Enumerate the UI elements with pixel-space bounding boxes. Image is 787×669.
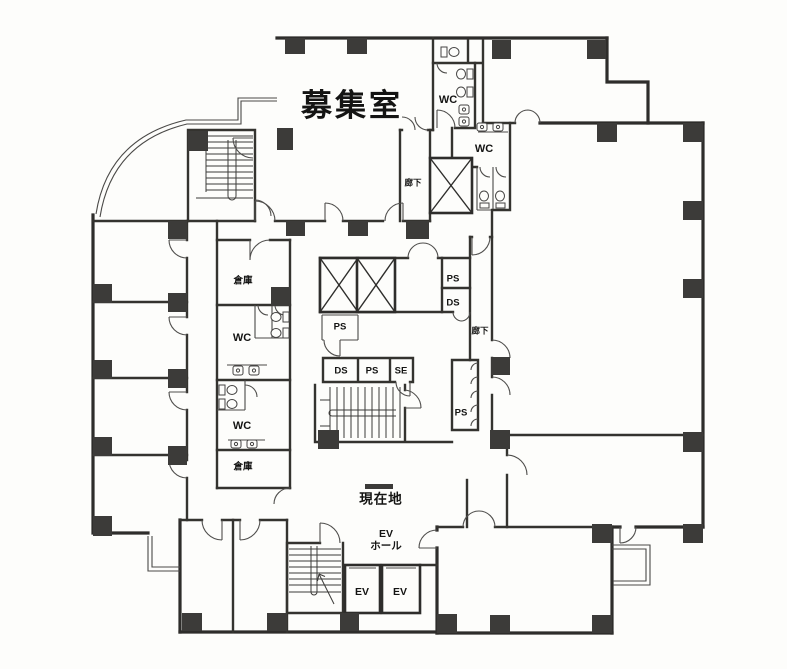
- label-ev-hall-line1: EV: [379, 528, 393, 540]
- label-current-location: 現在地: [359, 491, 403, 507]
- label-ps-row: PS: [366, 366, 379, 377]
- label-ps-tall: PS: [455, 408, 468, 419]
- label-ds-row: DS: [334, 366, 347, 377]
- balcony-edges: [96, 98, 650, 585]
- label-storage-upper: 倉庫: [232, 275, 253, 287]
- label-wc-top: WC: [439, 94, 457, 106]
- sink-icon: [249, 366, 259, 375]
- label-corridor-top: 廊下: [404, 177, 422, 187]
- sink-icon: [493, 123, 503, 131]
- label-ds-shaft: DS: [446, 298, 459, 309]
- label-wc-left-upper: WC: [233, 332, 251, 344]
- label-se-row: SE: [395, 366, 408, 377]
- sink-icon: [233, 366, 243, 375]
- label-ev-car-right: EV: [393, 586, 407, 598]
- label-ps-shaft: PS: [447, 274, 460, 285]
- toilet-icon: [457, 69, 474, 79]
- toilet-icon: [480, 191, 490, 208]
- label-ps-small: PS: [334, 322, 347, 333]
- sink-icon: [459, 105, 469, 114]
- toilet-icon: [271, 328, 289, 338]
- sink-icon: [459, 117, 469, 126]
- label-ev-car-left: EV: [355, 586, 369, 598]
- label-storage-lower: 倉庫: [232, 461, 253, 473]
- floor-plan: 募集室 WC WC 廊下 倉庫 PS DS 廊下 PS WC DS PS SE …: [0, 0, 787, 669]
- sink-icon: [231, 440, 241, 448]
- toilet-icon: [441, 47, 459, 57]
- label-main-room: 募集室: [300, 88, 403, 123]
- label-ev-hall-line2: ホール: [370, 540, 402, 552]
- toilet-icon: [219, 385, 237, 395]
- current-location-marker: [365, 484, 393, 489]
- staircase-bottom: [289, 546, 341, 604]
- toilet-icon: [457, 87, 474, 97]
- toilet-icon: [496, 191, 506, 208]
- label-wc-left-lower: WC: [233, 420, 251, 432]
- toilet-icon: [219, 399, 237, 409]
- label-corridor-right: 廊下: [471, 325, 489, 335]
- sink-icon: [477, 123, 487, 131]
- label-wc-mid: WC: [475, 143, 493, 155]
- floor-plan-drawing: 募集室 WC WC 廊下 倉庫 PS DS 廊下 PS WC DS PS SE …: [0, 0, 787, 669]
- sink-icon: [247, 440, 257, 448]
